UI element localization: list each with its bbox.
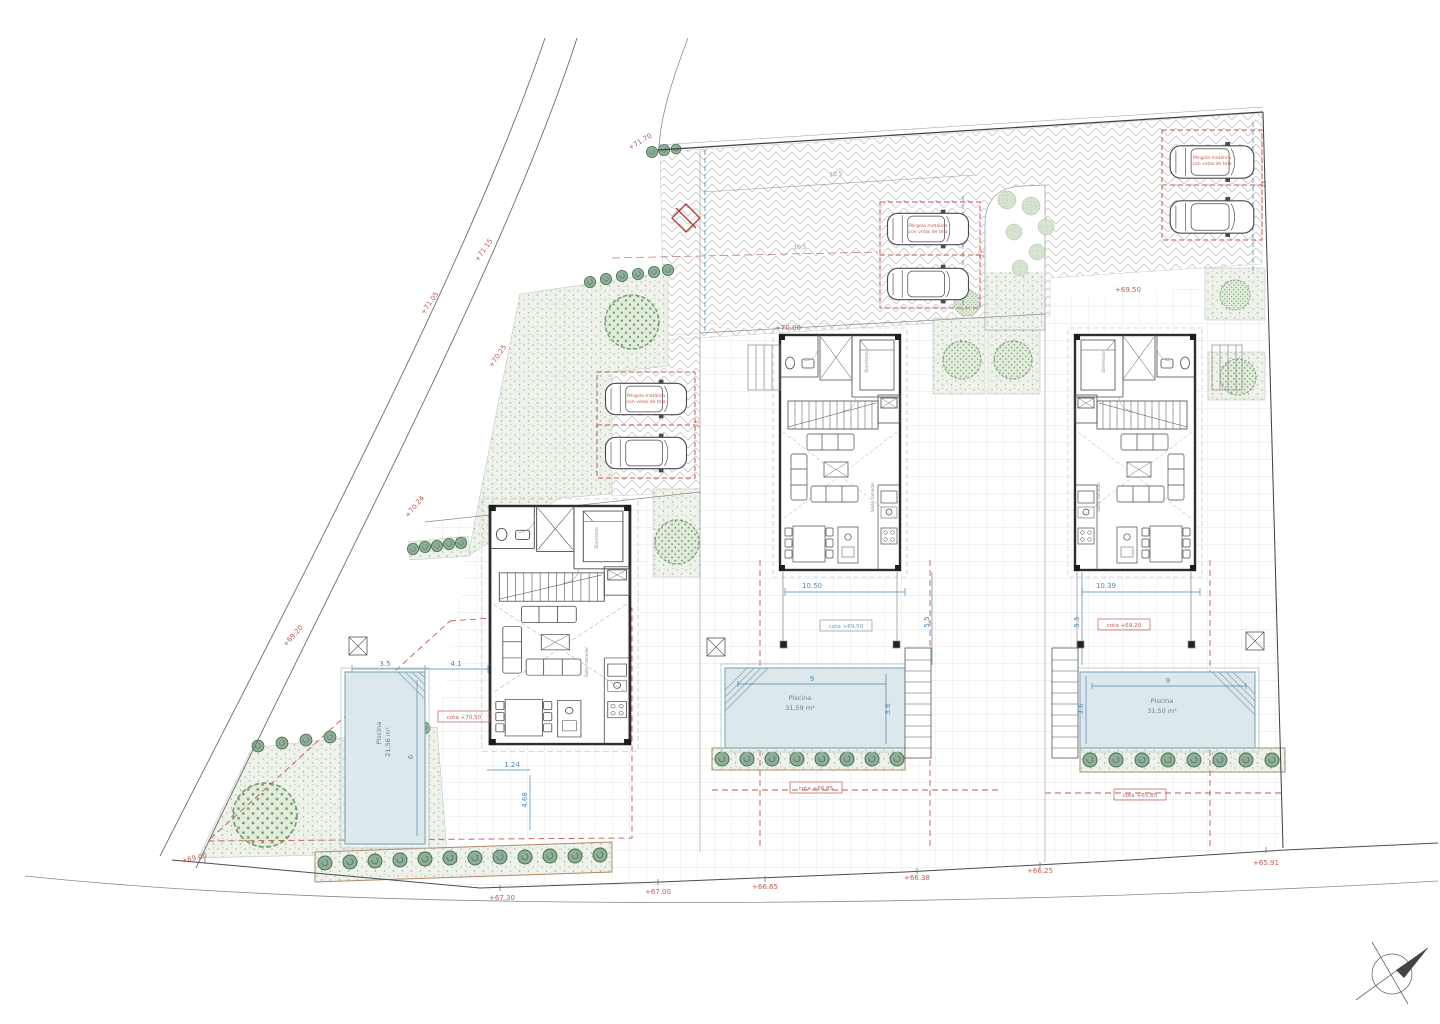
dim-label: 6 bbox=[407, 754, 415, 759]
north-compass-icon bbox=[1356, 942, 1428, 1004]
cota-label: cota +66,85 bbox=[799, 786, 834, 792]
villa-left bbox=[482, 499, 638, 751]
elevation-label: +66.65 bbox=[752, 883, 778, 891]
pool-label: Piscina bbox=[789, 694, 811, 702]
cota-label: cota +70,50 bbox=[447, 715, 482, 721]
elevation-label: +67.30 bbox=[489, 894, 515, 902]
dim-label: 3.5 bbox=[980, 250, 986, 257]
site-plan-drawing: +71.70 +71.15 +71.05 +70.25 +70.24 +69.2… bbox=[0, 0, 1440, 1024]
elevation-label: +69.20 bbox=[282, 624, 305, 649]
dim-label: 5.5 bbox=[923, 616, 931, 627]
pergola-label: Pérgola metálica bbox=[909, 222, 948, 229]
dim-label: 10.50 bbox=[802, 582, 822, 590]
dim-label: 10.5 bbox=[793, 244, 807, 251]
dim-label: 4.68 bbox=[521, 792, 529, 808]
room-label: Salón comedor bbox=[584, 647, 589, 677]
elevation-label: +70.25 bbox=[487, 343, 508, 369]
pool-area-label: 21,56 m² bbox=[384, 727, 392, 757]
cota-label: cota +69,50 bbox=[829, 624, 864, 630]
cota-label: cota +65,85 bbox=[1123, 793, 1158, 799]
room-label: Dormitorio bbox=[594, 527, 599, 549]
pool-left bbox=[341, 668, 429, 848]
dim-label: 1.24 bbox=[504, 761, 520, 769]
pool-area-label: 31,59 m² bbox=[785, 704, 815, 712]
pool-area-label: 31,50 m² bbox=[1147, 707, 1177, 715]
elevation-label: +66.25 bbox=[1027, 867, 1053, 875]
garden-elevation-label: +69.50 bbox=[1115, 286, 1141, 294]
pergola-label: con velas de tela bbox=[1192, 161, 1231, 167]
room-label: Dormitorio bbox=[864, 351, 869, 373]
car-icon bbox=[606, 380, 687, 419]
dim-label: 3.6 bbox=[1077, 703, 1085, 715]
garden-elevation-label: +70.00 bbox=[775, 324, 801, 332]
pergola-label: con velas de tela bbox=[908, 229, 947, 235]
dim-label: 3.5 bbox=[379, 660, 390, 668]
dim-label: 10.5 bbox=[829, 171, 843, 179]
elevation-label: +71.05 bbox=[419, 290, 440, 316]
elevation-label: +65.91 bbox=[1253, 859, 1279, 867]
room-label: Salón comedor bbox=[870, 482, 875, 512]
villa-middle bbox=[773, 328, 907, 577]
dim-label: 3.5 bbox=[695, 420, 701, 427]
room-label: Salón comedor bbox=[1096, 482, 1101, 512]
room-label: Dormitorio bbox=[1101, 351, 1106, 373]
dim-label: 4.1 bbox=[450, 660, 461, 668]
car-icon bbox=[1170, 197, 1254, 237]
pool-label: Piscina bbox=[375, 722, 383, 744]
elevation-label: +71.15 bbox=[473, 237, 494, 263]
site-plan-sheet: +71.70 +71.15 +71.05 +70.25 +70.24 +69.2… bbox=[0, 0, 1440, 1024]
pool-label: Piscina bbox=[1151, 697, 1173, 705]
car-icon bbox=[606, 434, 687, 473]
car-icon bbox=[888, 265, 969, 304]
dim-label: 3.6 bbox=[884, 703, 892, 715]
cota-label: cota +69,20 bbox=[1107, 623, 1142, 629]
pergola-label: con velas de tela bbox=[626, 399, 665, 405]
dim-label: 9 bbox=[810, 675, 814, 683]
pergola-label: Pérgola metálica bbox=[1193, 154, 1232, 161]
elevation-label: +70.24 bbox=[403, 494, 426, 519]
pergola-label: Pérgola metálica bbox=[627, 392, 666, 399]
dim-label: 3.5 bbox=[1262, 180, 1268, 187]
dim-label: 10.39 bbox=[1096, 582, 1116, 590]
elevation-label: +67.00 bbox=[645, 888, 671, 896]
villa-right bbox=[1068, 328, 1202, 577]
dim-label: 9 bbox=[1166, 677, 1170, 685]
dim-label: 5.5 bbox=[1073, 616, 1081, 627]
car-icon bbox=[888, 210, 969, 249]
elevation-label: +66.38 bbox=[904, 874, 930, 882]
